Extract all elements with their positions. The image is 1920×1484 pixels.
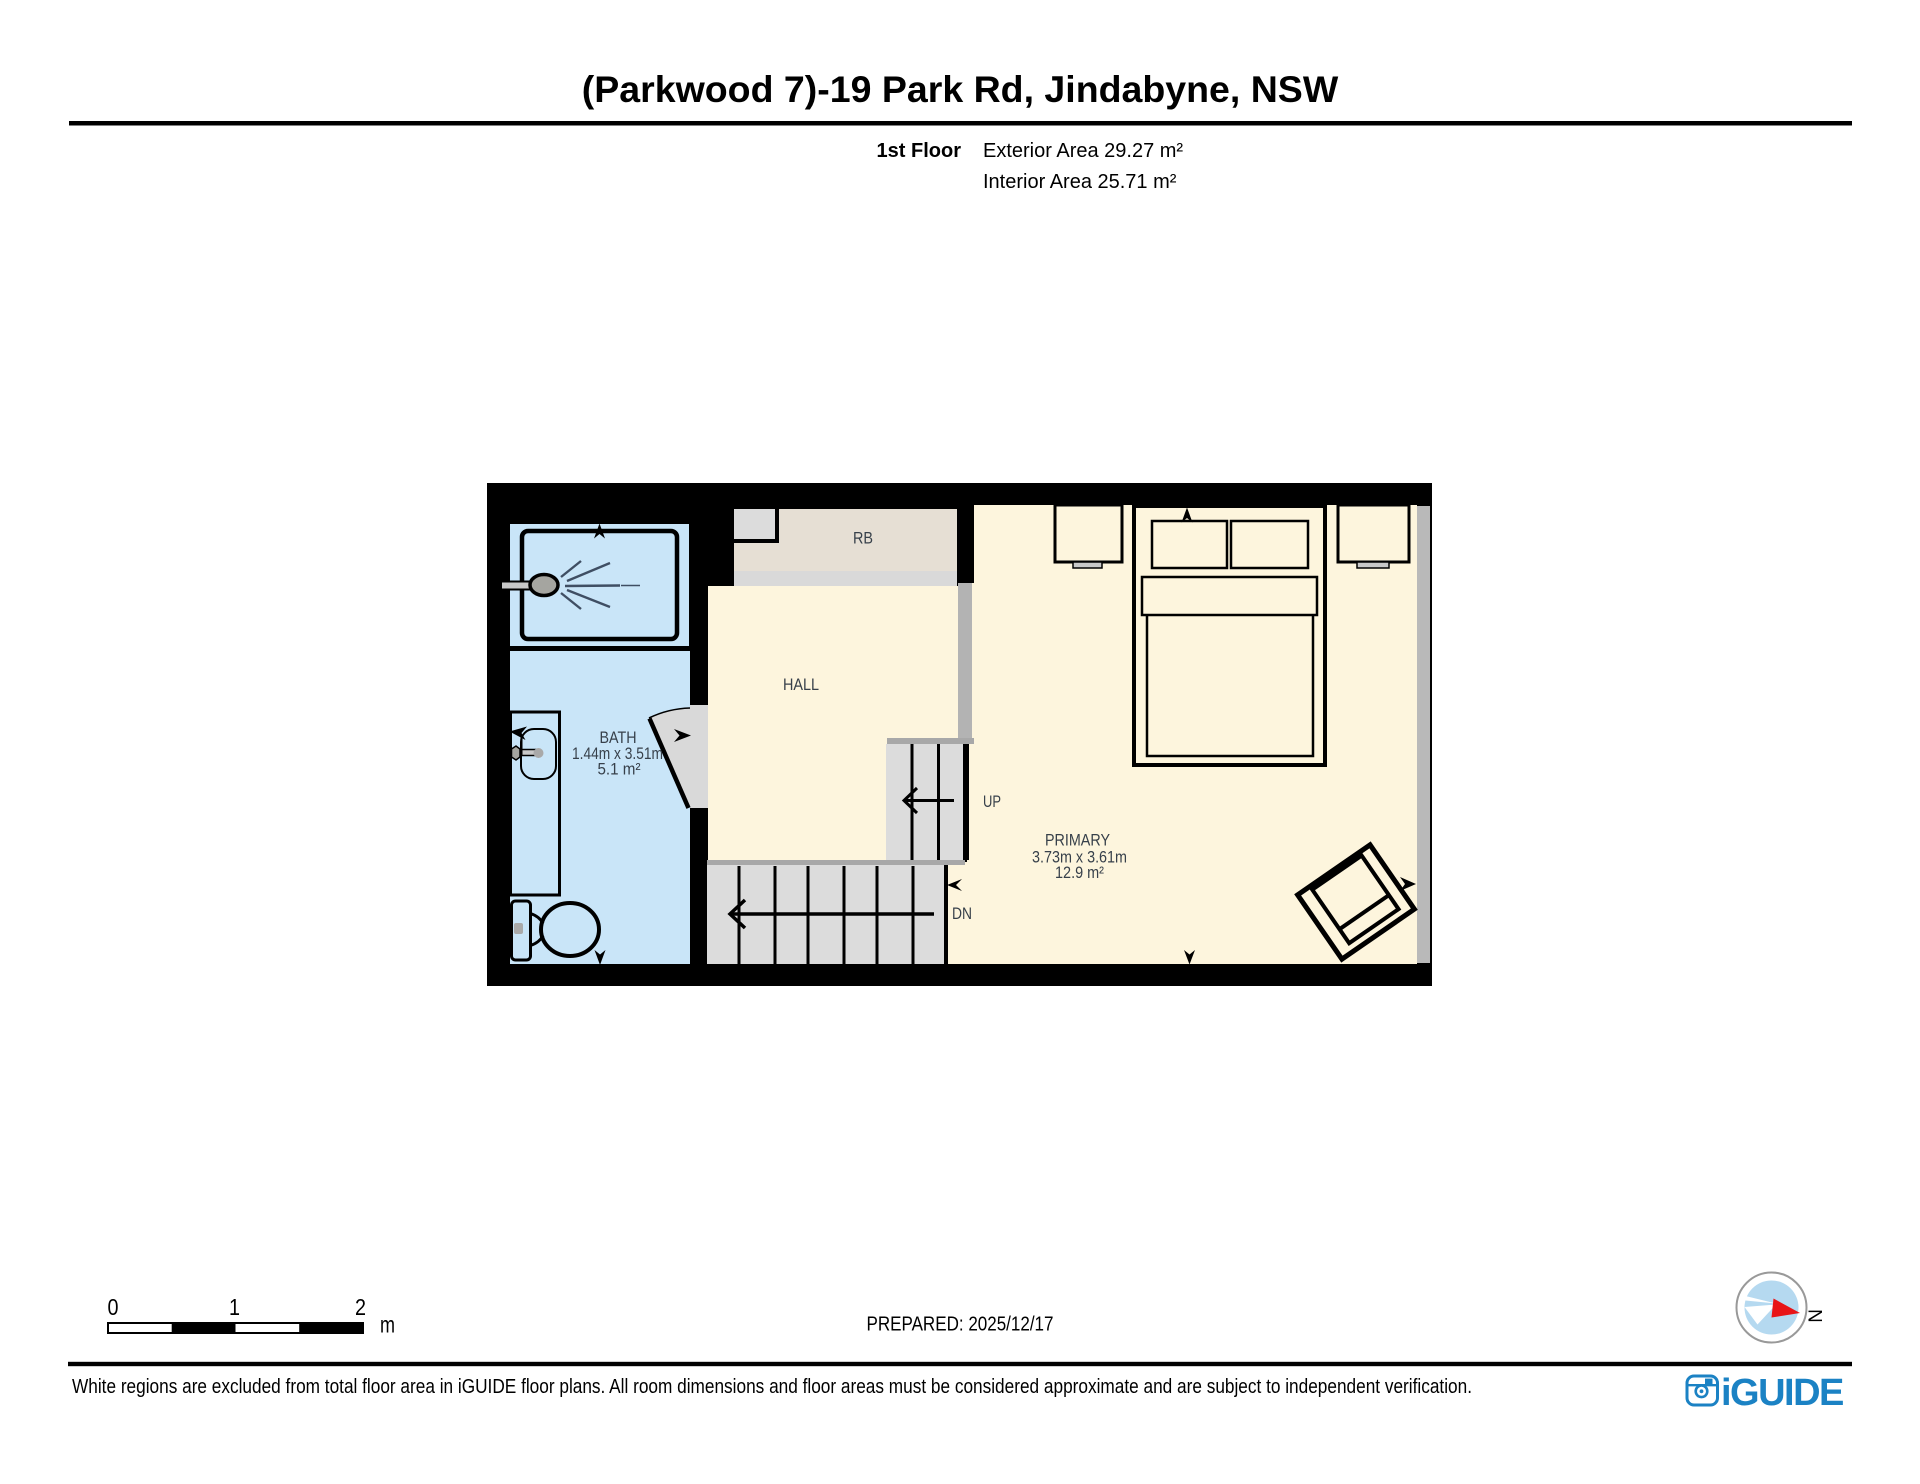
svg-text:5.1 m²: 5.1 m² — [598, 760, 641, 779]
svg-text:1: 1 — [229, 1294, 240, 1320]
svg-text:N: N — [1804, 1309, 1825, 1323]
svg-text:PREPARED: 2025/12/17: PREPARED: 2025/12/17 — [867, 1314, 1054, 1336]
svg-text:(Parkwood 7)-19 Park Rd, Jinda: (Parkwood 7)-19 Park Rd, Jindabyne, NSW — [582, 68, 1339, 110]
svg-text:0: 0 — [108, 1294, 119, 1320]
svg-text:m: m — [380, 1312, 395, 1338]
svg-text:iGUIDE: iGUIDE — [1721, 1372, 1843, 1414]
svg-text:12.9 m²: 12.9 m² — [1055, 863, 1104, 882]
svg-text:Interior Area 25.71 m²: Interior Area 25.71 m² — [983, 171, 1177, 193]
svg-text:RB: RB — [853, 529, 873, 548]
svg-text:DN: DN — [952, 904, 972, 923]
svg-text:Exterior Area 29.27 m²: Exterior Area 29.27 m² — [983, 140, 1183, 162]
svg-text:UP: UP — [983, 792, 1001, 811]
svg-text:HALL: HALL — [783, 675, 819, 694]
svg-text:White regions are excluded fro: White regions are excluded from total fl… — [72, 1376, 1472, 1398]
svg-text:2: 2 — [355, 1294, 366, 1320]
svg-text:1st Floor: 1st Floor — [877, 140, 962, 162]
